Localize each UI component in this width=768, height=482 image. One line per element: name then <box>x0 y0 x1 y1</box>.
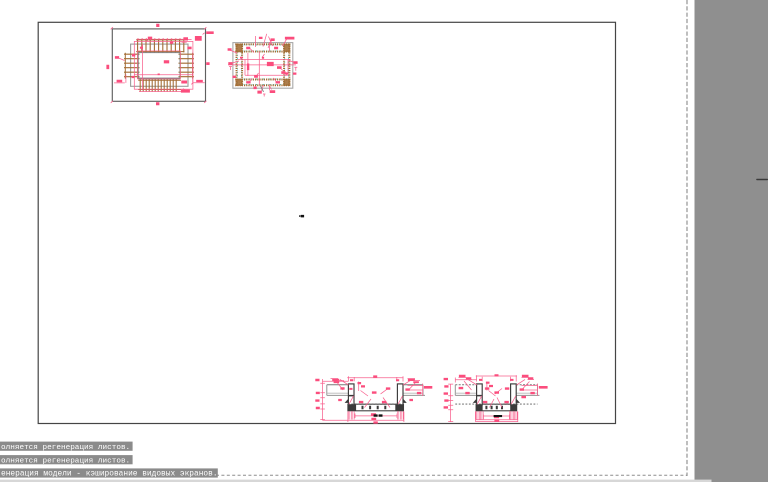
svg-text:енерация модели - кэширование: енерация модели - кэширование видовых эк… <box>1 470 218 479</box>
svg-text:олняется регенерация листов.: олняется регенерация листов. <box>1 457 130 465</box>
svg-text:олняется регенерация листов.: олняется регенерация листов. <box>1 444 130 452</box>
